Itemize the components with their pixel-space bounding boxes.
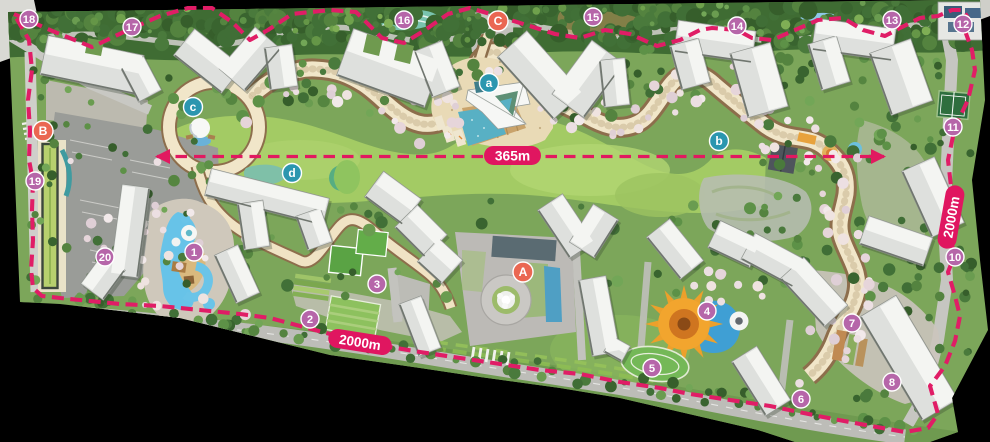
svg-text:a: a: [486, 76, 493, 90]
svg-text:17: 17: [126, 22, 138, 34]
svg-text:10: 10: [949, 252, 961, 264]
svg-text:365m: 365m: [495, 149, 530, 164]
svg-text:c: c: [190, 100, 197, 114]
svg-text:b: b: [715, 134, 722, 148]
svg-text:8: 8: [889, 377, 895, 389]
svg-text:1: 1: [191, 247, 197, 259]
svg-text:d: d: [288, 166, 295, 180]
svg-text:18: 18: [23, 14, 35, 26]
svg-text:2: 2: [307, 314, 313, 326]
svg-text:15: 15: [587, 12, 599, 24]
svg-text:12: 12: [957, 19, 969, 31]
svg-text:13: 13: [886, 15, 898, 27]
svg-text:20: 20: [99, 252, 111, 264]
svg-text:16: 16: [398, 15, 410, 27]
svg-text:19: 19: [29, 176, 41, 188]
svg-text:5: 5: [649, 363, 655, 375]
svg-text:6: 6: [798, 394, 804, 406]
svg-text:11: 11: [947, 122, 959, 134]
svg-text:A: A: [519, 265, 528, 279]
svg-text:3: 3: [374, 279, 380, 291]
svg-text:B: B: [39, 124, 48, 138]
svg-text:7: 7: [849, 318, 855, 330]
svg-text:14: 14: [731, 21, 744, 33]
svg-text:C: C: [494, 14, 503, 28]
svg-text:4: 4: [704, 306, 711, 318]
